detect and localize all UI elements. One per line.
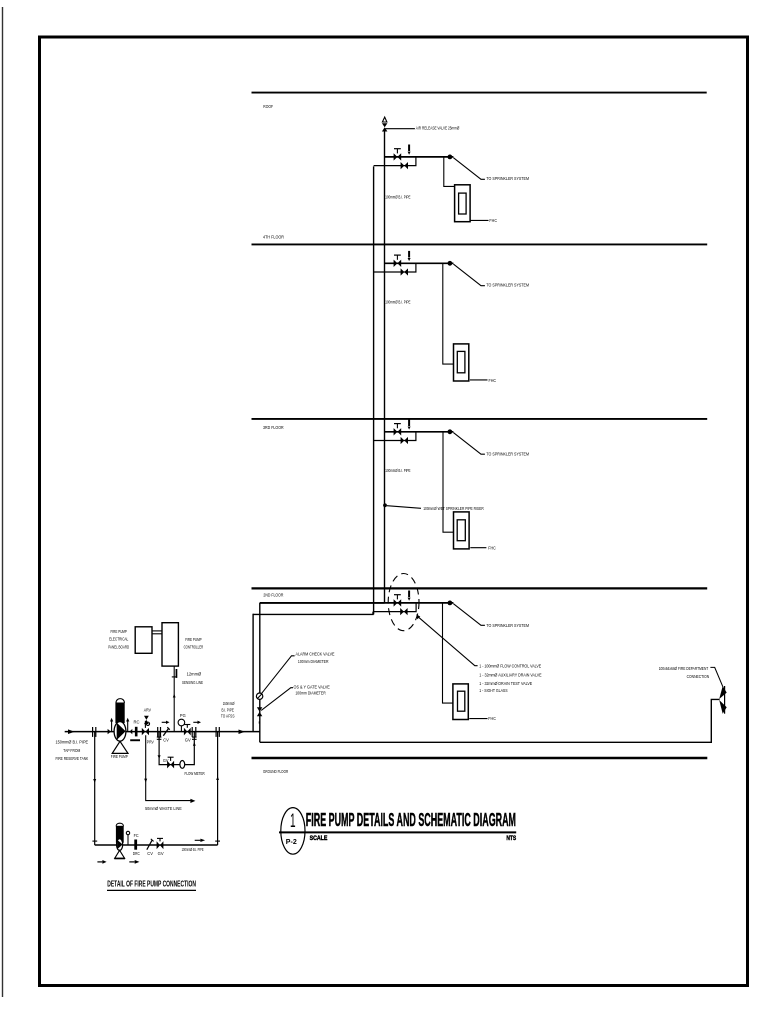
svg-text:FHC: FHC — [489, 218, 497, 223]
svg-text:FIRE PUMP: FIRE PUMP — [111, 754, 128, 759]
svg-text:1 - 32mmØ AUXILIARY DRAIN VALV: 1 - 32mmØ AUXILIARY DRAIN VALVE — [479, 672, 542, 677]
svg-text:TO SPRINKLER SYSTEM: TO SPRINKLER SYSTEM — [486, 452, 529, 457]
svg-text:DRC: DRC — [133, 851, 140, 856]
svg-text:1 - SIGHT GLASS: 1 - SIGHT GLASS — [479, 688, 508, 693]
svg-text:DETAIL OF FIRE PUMP CONNECTION: DETAIL OF FIRE PUMP CONNECTION — [107, 879, 196, 888]
svg-text:FIRE PUMP: FIRE PUMP — [185, 637, 202, 642]
svg-text:GV: GV — [163, 758, 169, 763]
svg-text:3RD FLOOR: 3RD FLOOR — [263, 425, 284, 430]
svg-text:SCALE: SCALE — [310, 835, 328, 842]
svg-text:GV: GV — [185, 738, 191, 743]
svg-text:CONNECTION: CONNECTION — [687, 674, 710, 679]
svg-text:GV: GV — [158, 851, 164, 856]
svg-text:B.I. PIPE: B.I. PIPE — [222, 708, 235, 713]
svg-text:PG: PG — [180, 713, 186, 718]
svg-text:TAP FROM: TAP FROM — [63, 748, 80, 753]
svg-text:ARV: ARV — [144, 708, 151, 713]
svg-text:FHC: FHC — [488, 545, 496, 550]
svg-text:SENSING LINE: SENSING LINE — [182, 680, 203, 685]
svg-text:FLOW METER: FLOW METER — [185, 771, 205, 776]
svg-text:100x64x64Ø FIRE DEPARTMENT: 100x64x64Ø FIRE DEPARTMENT — [659, 666, 709, 671]
svg-text:GROUND FLOOR: GROUND FLOOR — [263, 769, 289, 774]
svg-text:4TH FLOOR: 4TH FLOOR — [263, 235, 285, 240]
svg-text:TO SPRINKLER SYSTEM: TO SPRINKLER SYSTEM — [486, 283, 529, 288]
svg-text:TO SPRINKLER SYSTEM: TO SPRINKLER SYSTEM — [486, 623, 529, 628]
svg-text:FC: FC — [134, 833, 139, 838]
svg-text:100mm DIAMETER: 100mm DIAMETER — [295, 691, 325, 696]
svg-text:12mmØ: 12mmØ — [187, 671, 202, 676]
svg-text:100mm DIAMETER: 100mm DIAMETER — [298, 659, 329, 664]
svg-text:100mmØ WET SPRINKLER PIPE RISE: 100mmØ WET SPRINKLER PIPE RISER — [423, 506, 484, 511]
svg-text:CONTROLLER: CONTROLLER — [184, 645, 204, 650]
svg-text:P-2: P-2 — [286, 839, 297, 846]
svg-text:FIRE PUMP DETAILS AND SCHEMATI: FIRE PUMP DETAILS AND SCHEMATIC DIAGRAM — [306, 810, 516, 830]
svg-text:100mmØ B.I. PIPE: 100mmØ B.I. PIPE — [385, 195, 410, 200]
svg-text:50mmØ WASTE LINE: 50mmØ WASTE LINE — [145, 806, 182, 811]
svg-text:1 - 100mmØ FLOW CONTROL VALVE: 1 - 100mmØ FLOW CONTROL VALVE — [479, 664, 541, 669]
svg-text:TO SPRINKLER SYSTEM: TO SPRINKLER SYSTEM — [486, 176, 529, 181]
svg-text:PANEL BOARD: PANEL BOARD — [108, 645, 129, 650]
svg-text:FIRE RESERVE TANK: FIRE RESERVE TANK — [56, 756, 89, 761]
svg-text:RC: RC — [134, 720, 140, 725]
svg-text:150mmØ: 150mmØ — [223, 701, 235, 706]
svg-text:1 - 32mmØ DRAIN TEST VALVE: 1 - 32mmØ DRAIN TEST VALVE — [479, 681, 532, 686]
svg-text:FIRE PUMP: FIRE PUMP — [111, 629, 128, 634]
svg-text:OS & Y GATE VALVE: OS & Y GATE VALVE — [294, 685, 330, 690]
svg-text:PRV: PRV — [147, 739, 154, 744]
svg-text:ELECTRICAL: ELECTRICAL — [109, 637, 129, 642]
svg-text:100mmØ B.I. PIPE: 100mmØ B.I. PIPE — [182, 847, 204, 852]
svg-text:2ND FLOOR: 2ND FLOOR — [263, 593, 284, 598]
svg-text:TO AFSS: TO AFSS — [221, 714, 235, 719]
svg-text:NTS: NTS — [506, 835, 516, 842]
svg-text:FHC: FHC — [489, 378, 497, 383]
svg-text:100mmØ B.I. PIPE: 100mmØ B.I. PIPE — [385, 468, 410, 473]
svg-text:1: 1 — [290, 811, 296, 832]
svg-text:CV: CV — [163, 738, 169, 743]
svg-text:100mmØ B.I. PIPE: 100mmØ B.I. PIPE — [385, 300, 410, 305]
svg-text:CV: CV — [147, 851, 153, 856]
svg-text:ROOF: ROOF — [263, 104, 273, 109]
svg-text:AIR RELEASE VALVE 25mmØ: AIR RELEASE VALVE 25mmØ — [416, 125, 460, 130]
svg-text:150mmØ B.I. PIPE: 150mmØ B.I. PIPE — [56, 739, 89, 744]
svg-text:ALARM CHECK VALVE: ALARM CHECK VALVE — [296, 652, 335, 657]
svg-text:FHC: FHC — [488, 716, 496, 721]
